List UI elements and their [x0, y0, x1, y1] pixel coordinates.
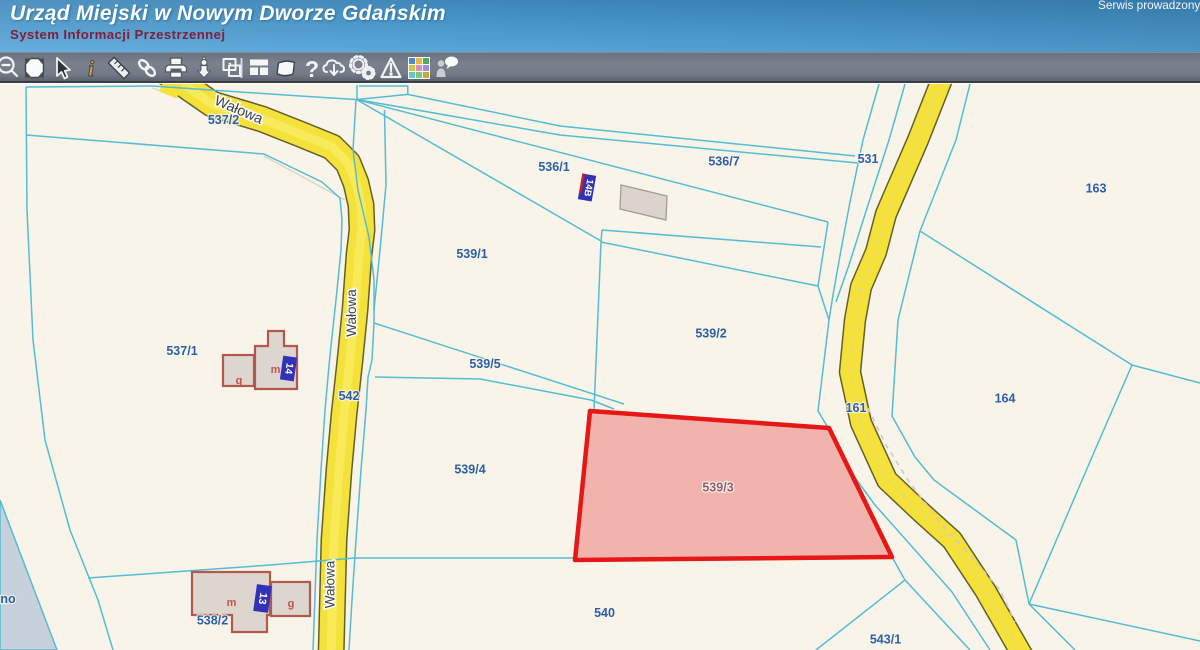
svg-text:m: m	[227, 597, 237, 609]
svg-text:m: m	[271, 364, 281, 376]
svg-text:539/5: 539/5	[469, 357, 500, 371]
svg-text:no: no	[0, 592, 16, 606]
svg-text:164: 164	[995, 392, 1016, 406]
svg-text:540: 540	[594, 606, 615, 620]
svg-text:539/2: 539/2	[695, 327, 726, 341]
svg-text:i: i	[88, 56, 95, 81]
svg-text:Wałowa: Wałowa	[323, 560, 338, 608]
svg-text:537/2: 537/2	[208, 113, 239, 127]
svg-text:161: 161	[846, 401, 867, 415]
svg-text:543/1: 543/1	[870, 633, 901, 647]
svg-text:539/4: 539/4	[454, 463, 485, 477]
svg-text:539/3: 539/3	[702, 481, 733, 495]
svg-text:?: ?	[305, 56, 319, 82]
svg-text:542: 542	[339, 389, 360, 403]
svg-text:539/1: 539/1	[456, 247, 487, 261]
svg-text:163: 163	[1086, 182, 1107, 196]
svg-text:537/1: 537/1	[166, 344, 197, 358]
svg-text:531: 531	[858, 152, 879, 166]
svg-text:536/1: 536/1	[538, 160, 569, 174]
svg-text:g: g	[288, 598, 295, 610]
svg-text:g: g	[236, 375, 243, 387]
svg-text:Wałowa: Wałowa	[344, 289, 359, 337]
svg-text:536/7: 536/7	[708, 155, 739, 169]
svg-text:13: 13	[256, 592, 270, 605]
svg-text:14: 14	[282, 362, 295, 375]
svg-text:538/2: 538/2	[197, 614, 228, 628]
